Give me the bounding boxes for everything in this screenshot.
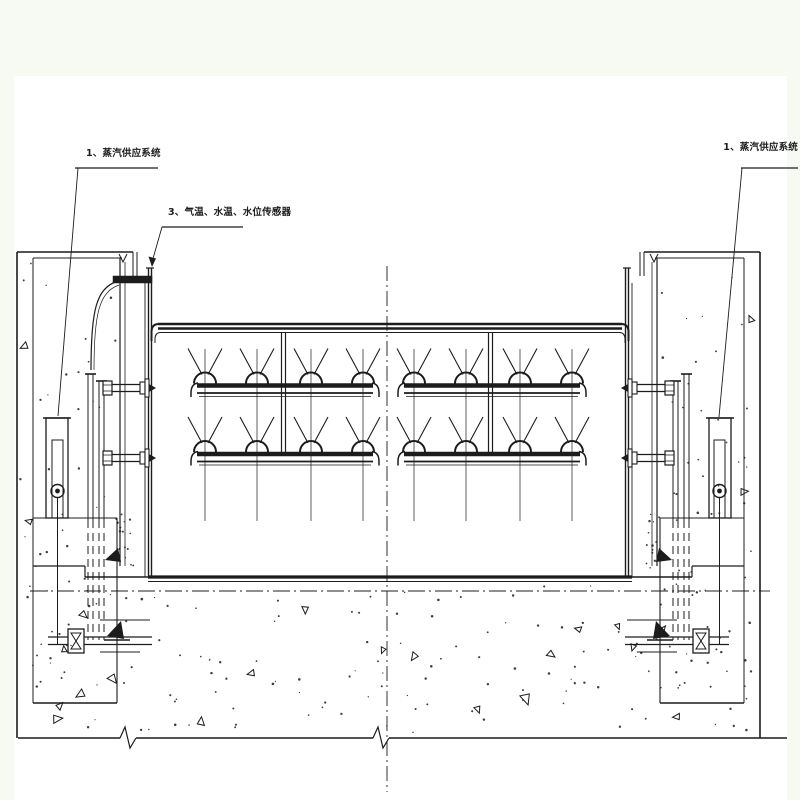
stipple-dot — [84, 578, 86, 580]
stipple-dot — [662, 356, 665, 359]
stipple-dot — [65, 373, 67, 375]
stipple-dot — [645, 718, 647, 720]
stipple-dot — [110, 296, 113, 299]
stipple-dot — [682, 407, 684, 409]
stipple-dot — [46, 551, 48, 553]
stipple-dot — [154, 597, 155, 598]
stipple-dot — [707, 662, 709, 664]
stipple-dot — [299, 692, 300, 693]
stipple-dot — [563, 703, 565, 705]
paper-sheet — [14, 76, 787, 800]
stipple-dot — [49, 657, 51, 659]
stipple-dot — [96, 684, 97, 685]
stipple-dot — [40, 681, 42, 683]
stipple-dot — [483, 718, 485, 720]
stipple-dot — [61, 677, 63, 679]
stipple-dot — [179, 654, 181, 656]
stipple-dot — [366, 641, 368, 643]
stipple-dot — [741, 324, 743, 326]
stipple-dot — [210, 672, 212, 674]
stipple-dot — [24, 536, 25, 537]
stipple-dot — [51, 631, 53, 633]
stipple-dot — [702, 475, 704, 477]
stipple-dot — [717, 419, 719, 421]
stipple-dot — [36, 685, 38, 687]
stipple-dot — [96, 603, 98, 605]
stipple-dot — [23, 279, 25, 281]
stipple-dot — [710, 513, 712, 515]
stipple-dot — [129, 519, 131, 521]
stipple-dot — [729, 708, 731, 710]
stipple-dot — [746, 466, 747, 467]
stipple-dot — [700, 410, 702, 412]
stipple-dot — [122, 531, 124, 533]
stipple-dot — [340, 713, 342, 715]
stipple-dot — [115, 518, 117, 520]
stipple-dot — [648, 532, 650, 534]
stipple-dot — [505, 622, 506, 623]
stipple-dot — [176, 698, 178, 700]
stipple-dot — [574, 682, 576, 684]
stipple-dot — [324, 701, 326, 703]
stipple-dot — [424, 677, 426, 679]
stipple-dot — [30, 263, 32, 265]
stipple-dot — [690, 659, 692, 661]
stipple-dot — [654, 560, 656, 562]
stipple-dot — [140, 729, 142, 731]
stipple-dot — [88, 361, 90, 363]
stipple-dot — [96, 507, 97, 508]
stipple-dot — [158, 639, 160, 641]
stipple-dot — [234, 726, 236, 728]
stipple-dot — [655, 541, 657, 543]
stipple-dot — [675, 493, 677, 495]
stipple-dot — [543, 585, 545, 587]
stipple-dot — [718, 512, 720, 514]
stipple-dot — [36, 654, 38, 656]
stipple-dot — [649, 567, 651, 569]
stipple-dot — [696, 591, 698, 593]
stipple-dot — [415, 708, 417, 710]
stipple-dot — [746, 698, 748, 700]
stipple-dot — [232, 708, 234, 710]
stipple-dot — [674, 492, 676, 494]
stipple-dot — [124, 546, 126, 548]
stipple-dot — [636, 643, 638, 645]
stipple-dot — [63, 671, 65, 673]
stipple-dot — [548, 672, 551, 675]
stipple-dot — [58, 633, 60, 635]
stipple-dot — [426, 703, 428, 705]
stipple-dot — [215, 691, 217, 693]
stipple-dot — [47, 394, 48, 395]
stipple-dot — [78, 467, 80, 469]
stipple-dot — [274, 621, 276, 623]
stipple-dot — [381, 685, 383, 687]
stipple-dot — [235, 724, 237, 726]
label-steam-supply-left: 1、蒸汽供应系统 — [86, 147, 161, 159]
stipple-dot — [85, 338, 87, 340]
stipple-dot — [744, 685, 746, 687]
stipple-dot — [676, 583, 678, 585]
stipple-dot — [743, 502, 745, 504]
stipple-dot — [487, 631, 489, 633]
stipple-dot — [656, 639, 658, 641]
stipple-dot — [19, 478, 21, 480]
stipple-dot — [45, 285, 46, 286]
stipple-dot — [705, 590, 706, 591]
stipple-dot — [351, 611, 353, 613]
stipple-dot — [70, 645, 71, 646]
stipple-dot — [661, 292, 663, 294]
stipple-dot — [728, 630, 730, 632]
stipple-dot — [660, 603, 662, 605]
stipple-dot — [726, 671, 728, 673]
stipple-dot — [590, 585, 591, 586]
stipple-dot — [225, 678, 227, 680]
stipple-dot — [715, 724, 716, 725]
stipple-dot — [745, 729, 748, 732]
stipple-dot — [460, 596, 462, 598]
stipple-dot — [583, 682, 585, 684]
stipple-dot — [396, 613, 398, 615]
stipple-dot — [275, 681, 276, 682]
stipple-dot — [607, 649, 609, 651]
stipple-dot — [583, 651, 585, 653]
stipple-dot — [658, 516, 660, 518]
stipple-dot — [77, 408, 79, 410]
label-steam-supply-right: 1、蒸汽供应系统 — [723, 141, 798, 153]
stipple-dot — [669, 646, 671, 648]
stipple-dot — [640, 651, 643, 654]
stipple-dot — [648, 520, 650, 522]
stipple-dot — [322, 707, 324, 709]
stipple-dot — [141, 598, 144, 601]
label-sensors: 3、气温、水温、水位传感器 — [168, 206, 292, 218]
stipple-dot — [124, 521, 125, 522]
stipple-dot — [88, 605, 91, 608]
stipple-dot — [39, 399, 41, 401]
stipple-dot — [131, 666, 133, 668]
drawing-canvas: 1、蒸汽供应系统 3、气温、水温、水位传感器 1、蒸汽供应系统 — [0, 0, 800, 800]
stipple-dot — [87, 726, 89, 728]
stipple-dot — [738, 461, 739, 462]
stipple-dot — [651, 544, 654, 547]
stipple-dot — [750, 670, 752, 672]
stipple-dot — [66, 545, 68, 547]
stipple-dot — [118, 548, 120, 550]
stipple-dot — [437, 599, 440, 602]
stipple-dot — [702, 316, 703, 317]
stipple-dot — [209, 659, 210, 660]
stipple-dot — [561, 626, 564, 629]
stipple-dot — [86, 590, 88, 592]
stipple-dot — [26, 596, 29, 599]
stipple-dot — [478, 656, 480, 658]
stipple-dot — [368, 696, 369, 697]
stipple-dot — [400, 643, 402, 645]
stipple-dot — [298, 678, 301, 681]
stipple-dot — [132, 564, 134, 566]
stipple-dot — [114, 340, 116, 342]
stipple-dot — [40, 643, 42, 645]
stipple-dot — [125, 557, 126, 558]
stipple-dot — [582, 622, 584, 624]
stipple-dot — [349, 675, 351, 677]
stipple-dot — [659, 561, 660, 562]
stipple-dot — [635, 656, 636, 657]
stipple-dot — [386, 725, 387, 726]
stipple-dot — [686, 318, 687, 319]
stipple-dot — [671, 401, 672, 402]
stipple-dot — [127, 548, 129, 550]
stipple-dot — [440, 658, 442, 660]
stipple-dot — [119, 530, 121, 532]
stipple-dot — [130, 564, 132, 566]
stipple-dot — [277, 600, 279, 602]
stipple-dot — [691, 594, 693, 596]
stipple-dot — [744, 659, 747, 662]
stipple-dot — [125, 597, 127, 599]
stipple-dot — [746, 408, 748, 410]
stipple-dot — [650, 514, 651, 515]
stipple-dot — [697, 459, 699, 461]
stipple-dot — [631, 708, 633, 710]
stipple-dot — [110, 594, 111, 595]
stipple-dot — [50, 662, 51, 663]
stipple-dot — [370, 596, 372, 598]
stipple-dot — [195, 607, 197, 609]
stipple-dot — [744, 577, 746, 579]
stipple-dot — [103, 496, 104, 497]
stipple-dot — [664, 588, 666, 590]
stipple-dot — [748, 622, 751, 625]
stipple-dot — [676, 519, 678, 521]
stipple-dot — [720, 651, 722, 653]
stipple-dot — [697, 512, 700, 515]
stipple-dot — [660, 687, 661, 688]
stipple-dot — [92, 401, 93, 402]
engineering-drawing: 1、蒸汽供应系统 3、气温、水温、水位传感器 1、蒸汽供应系统 — [0, 0, 800, 800]
stipple-dot — [750, 550, 752, 552]
stipple-dot — [129, 533, 131, 535]
stipple-dot — [121, 513, 123, 515]
stipple-dot — [66, 645, 67, 646]
stipple-dot — [29, 585, 31, 587]
stipple-dot — [167, 605, 169, 607]
stipple-dot — [731, 277, 732, 278]
stipple-dot — [355, 670, 356, 671]
stipple-dot — [308, 714, 310, 716]
stipple-dot — [653, 521, 654, 522]
stipple-dot — [678, 570, 680, 572]
stipple-dot — [431, 615, 434, 618]
stipple-dot — [125, 620, 127, 622]
stipple-dot — [684, 682, 686, 684]
stipple-dot — [744, 457, 746, 459]
stipple-dot — [618, 631, 620, 633]
stipple-dot — [77, 371, 79, 373]
stipple-dot — [471, 710, 473, 712]
stipple-dot — [677, 687, 679, 689]
stipple-dot — [256, 660, 258, 662]
stipple-dot — [430, 665, 433, 668]
stipple-dot — [706, 626, 708, 628]
stipple-dot — [35, 565, 37, 567]
stipple-dot — [455, 645, 457, 647]
stipple-dot — [690, 571, 692, 573]
stipple-dot — [119, 527, 121, 529]
stipple-dot — [651, 552, 653, 554]
stipple-dot — [68, 624, 70, 626]
stipple-dot — [726, 442, 728, 444]
stipple-dot — [652, 549, 654, 551]
stipple-dot — [62, 529, 64, 531]
stipple-dot — [404, 592, 405, 593]
stipple-dot — [710, 686, 712, 688]
stipple-dot — [94, 719, 95, 720]
stipple-dot — [174, 724, 177, 727]
stipple-dot — [679, 684, 681, 686]
stipple-dot — [674, 702, 675, 703]
stipple-dot — [169, 694, 171, 696]
stipple-dot — [39, 553, 41, 555]
stipple-dot — [123, 682, 125, 684]
stipple-dot — [407, 695, 408, 696]
stipple-dot — [669, 644, 670, 645]
stipple-dot — [512, 594, 514, 596]
stipple-dot — [32, 665, 34, 667]
stipple-dot — [377, 660, 379, 662]
stipple-dot — [718, 485, 719, 486]
stipple-dot — [565, 690, 566, 691]
stipple-dot — [47, 590, 48, 591]
stipple-dot — [687, 383, 689, 385]
stipple-dot — [514, 667, 517, 670]
stipple-dot — [695, 361, 697, 363]
stipple-dot — [537, 624, 539, 626]
stipple-dot — [48, 468, 50, 470]
stipple-dot — [61, 514, 63, 516]
stipple-dot — [487, 683, 489, 685]
stipple-dot — [219, 661, 221, 663]
stipple-dot — [646, 563, 648, 565]
stipple-dot — [715, 350, 717, 352]
stipple-dot — [68, 580, 70, 582]
stipple-dot — [648, 670, 650, 672]
stipple-dot — [574, 666, 576, 668]
stipple-dot — [278, 615, 280, 617]
stipple-dot — [733, 725, 735, 727]
stipple-dot — [98, 406, 100, 408]
stipple-dot — [188, 724, 190, 726]
stipple-dot — [619, 726, 621, 728]
stipple-dot — [174, 701, 176, 703]
stipple-dot — [116, 522, 118, 524]
stipple-dot — [719, 637, 721, 639]
stipple-dot — [148, 729, 149, 730]
stipple-dot — [687, 462, 689, 464]
stipple-dot — [675, 671, 677, 673]
stipple-dot — [272, 683, 275, 686]
stipple-dot — [412, 732, 413, 733]
stipple-dot — [571, 679, 572, 680]
stipple-dot — [686, 653, 687, 654]
stipple-dot — [715, 648, 717, 650]
stipple-dot — [382, 672, 383, 673]
stipple-dot — [646, 544, 648, 546]
stipple-dot — [358, 612, 360, 614]
stipple-dot — [522, 689, 524, 691]
stipple-dot — [200, 656, 202, 658]
stipple-dot — [597, 686, 599, 688]
